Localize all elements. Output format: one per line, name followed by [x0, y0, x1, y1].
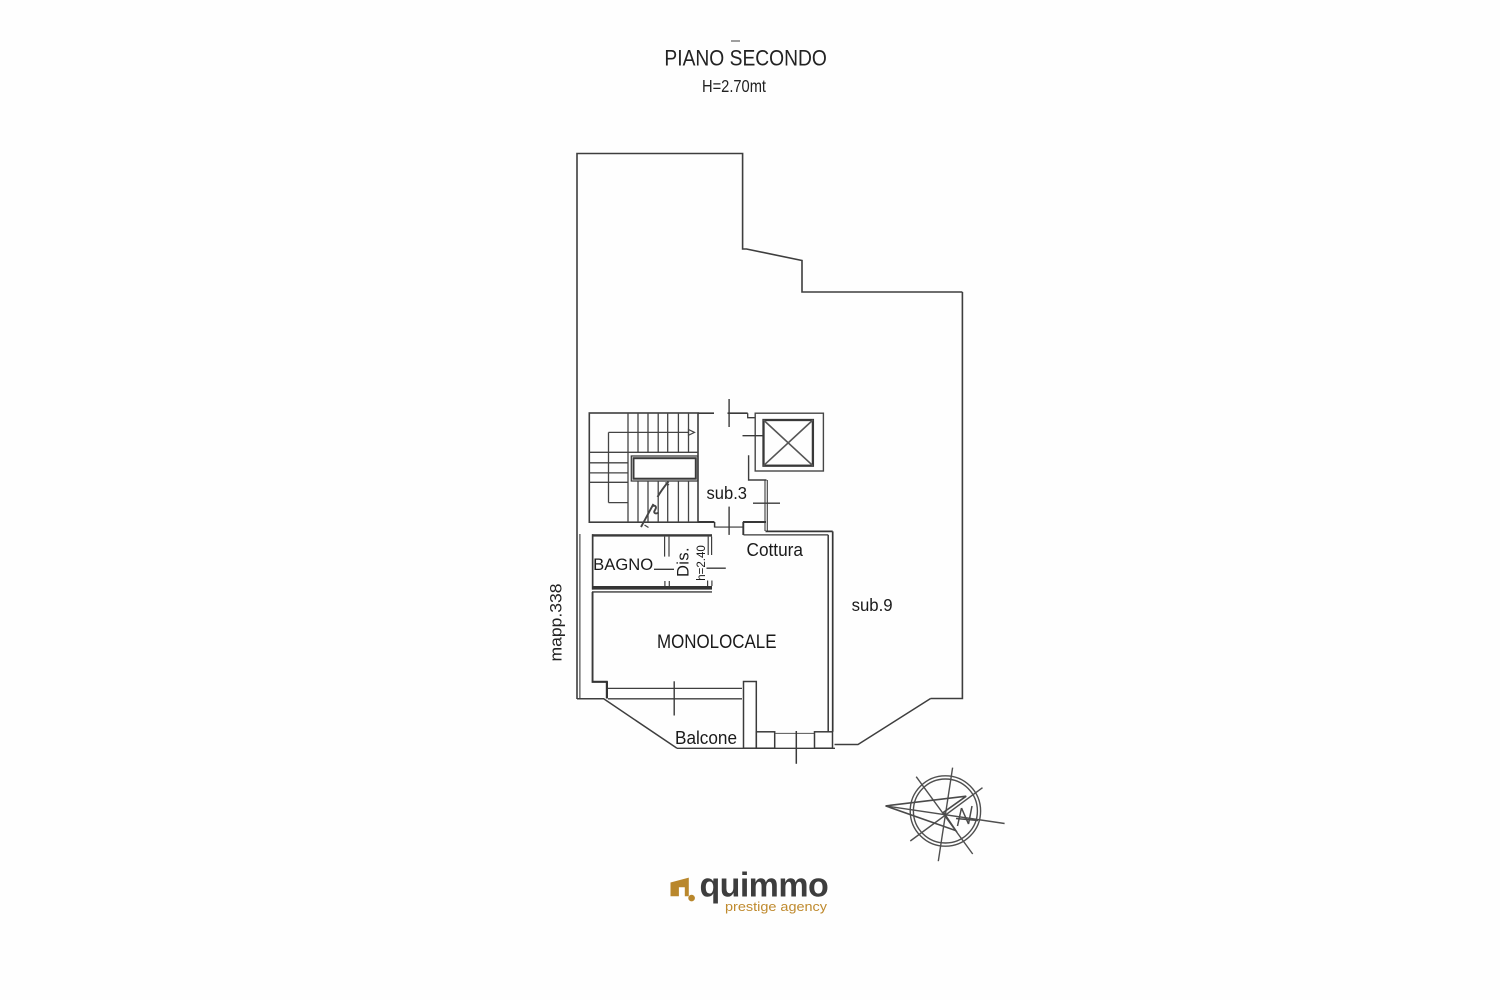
svg-text:H=2.70mt: H=2.70mt: [702, 76, 766, 96]
svg-text:Balcone: Balcone: [675, 728, 737, 748]
svg-text:MONOLOCALE: MONOLOCALE: [657, 631, 777, 653]
svg-text:Dis.: Dis.: [675, 547, 693, 577]
svg-text:sub.3: sub.3: [707, 483, 748, 503]
svg-text:sub.9: sub.9: [852, 595, 893, 615]
svg-text:mapp.338: mapp.338: [547, 584, 566, 662]
svg-text:h=2.40: h=2.40: [696, 545, 708, 581]
svg-text:Cottura: Cottura: [747, 540, 804, 560]
svg-text:BAGNO: BAGNO: [593, 556, 653, 574]
svg-text:PIANO SECONDO: PIANO SECONDO: [664, 46, 827, 71]
svg-text:prestige agency: prestige agency: [725, 899, 828, 914]
